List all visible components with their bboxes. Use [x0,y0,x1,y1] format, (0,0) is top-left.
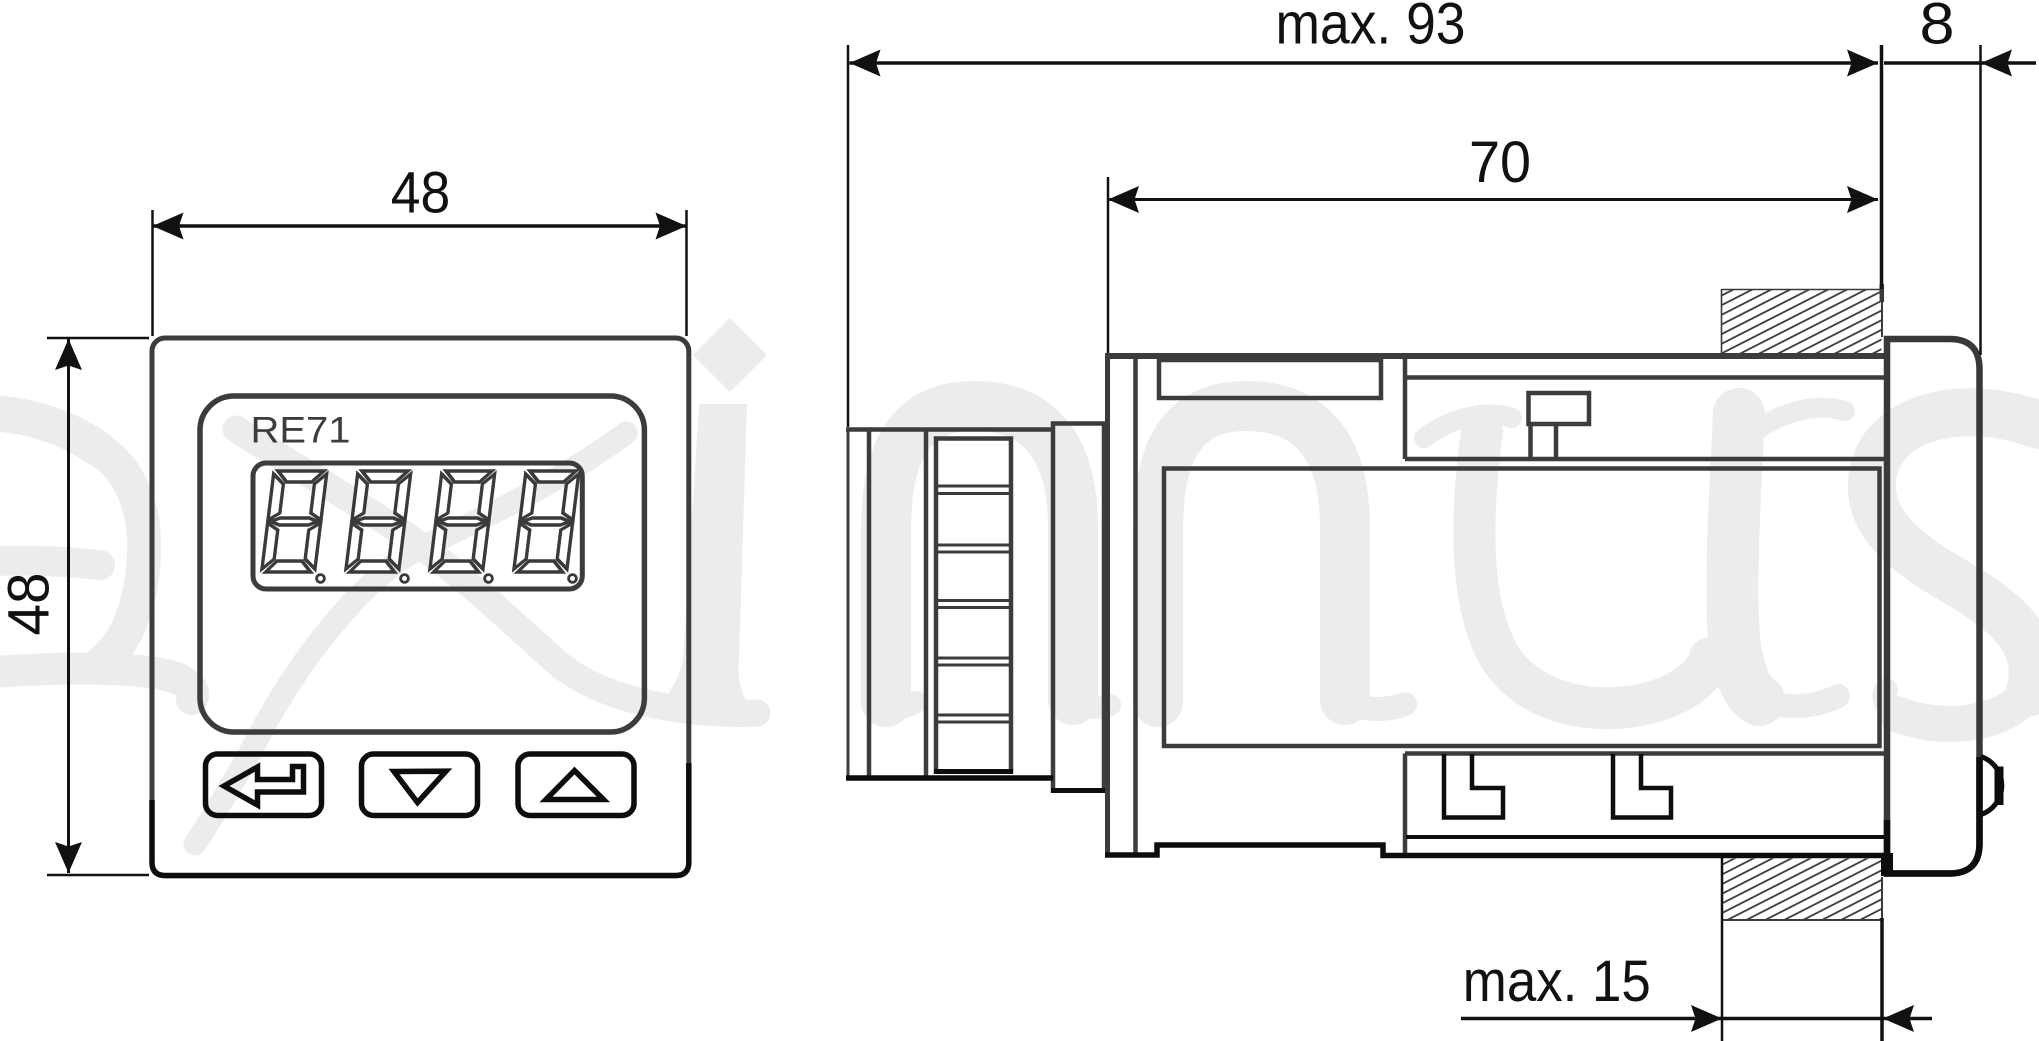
svg-text:70: 70 [1469,130,1531,195]
svg-text:max. 93: max. 93 [1276,0,1466,57]
svg-text:max. 15: max. 15 [1463,949,1651,1014]
svg-text:RE71: RE71 [251,410,351,451]
svg-text:48: 48 [391,161,451,226]
svg-text:48: 48 [0,573,62,636]
svg-text:8: 8 [1920,0,1955,57]
